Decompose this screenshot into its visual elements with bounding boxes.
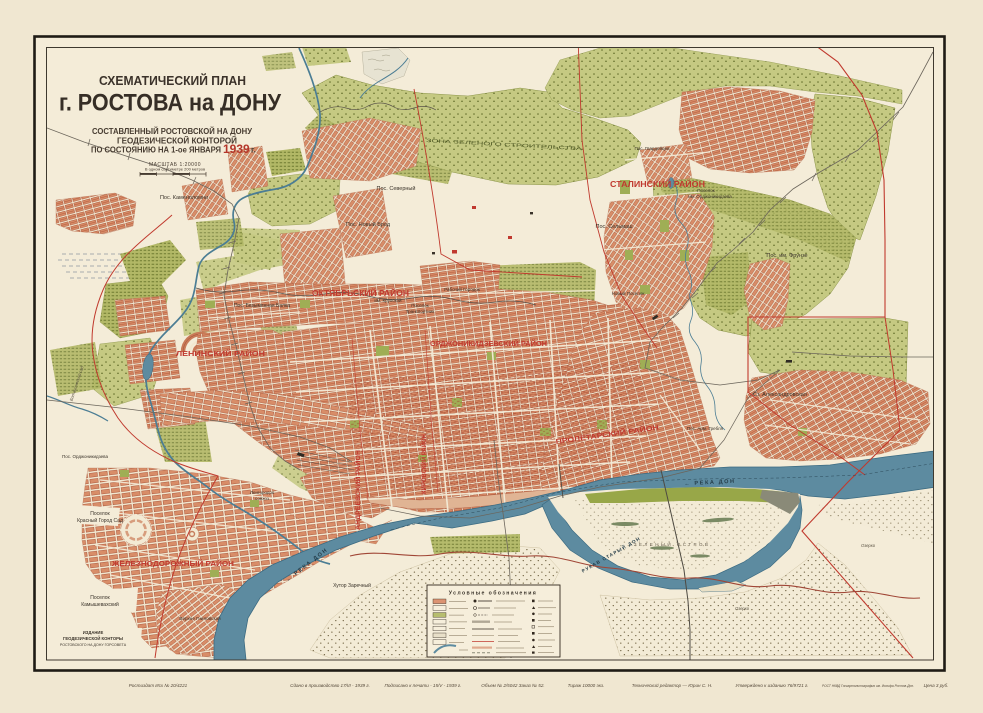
svg-text:им. Крупской: им. Крупской [374, 297, 402, 303]
svg-text:СТАЛИНСКИЙ РАЙОН: СТАЛИНСКИЙ РАЙОН [610, 178, 705, 189]
svg-text:им. Орджоникидзева: им. Орджоникидзева [688, 194, 732, 199]
svg-text:Пос. Каменоломни: Пос. Каменоломни [160, 195, 208, 201]
svg-text:Камышевахский: Камышевахский [81, 601, 119, 608]
svg-text:Пос. Безымянная Балка: Пос. Безымянная Балка [234, 303, 290, 309]
svg-text:Пос. Гвардейцев: Пос. Гвардейцев [635, 145, 671, 151]
svg-text:Условные обозначения: Условные обозначения [449, 590, 537, 597]
svg-text:1939: 1939 [223, 142, 250, 156]
svg-text:В одном сантиметре 200 метров: В одном сантиметре 200 метров [145, 167, 205, 172]
svg-text:Пос. Новый Брод: Пос. Новый Брод [346, 221, 391, 228]
svg-text:Цена 3 руб.: Цена 3 руб. [924, 683, 949, 688]
svg-text:Новый Поселок: Новый Поселок [612, 290, 645, 296]
svg-text:Верхне Гниловская: Верхне Гниловская [179, 616, 221, 621]
svg-text:ИЗДАНИЕ: ИЗДАНИЕ [83, 630, 104, 635]
svg-text:Озерко: Озерко [861, 543, 876, 548]
svg-text:ЛЕНИНСКИЙ РАЙОН: ЛЕНИНСКИЙ РАЙОН [176, 349, 265, 358]
svg-text:Пос. Арм. Гребля: Пос. Арм. Гребля [687, 426, 724, 431]
svg-text:Поселок: Поселок [90, 511, 110, 517]
svg-text:Хутор Заречный: Хутор Заречный [333, 582, 371, 589]
svg-text:РОСТ НКВД Госкартолитография и: РОСТ НКВД Госкартолитография им. Иосифа … [822, 683, 914, 688]
svg-text:ЗЕЛЕНЫЙ ОСТРОВ: ЗЕЛЕНЫЙ ОСТРОВ [634, 540, 711, 547]
svg-text:Ст. Александровская: Ст. Александровская [753, 392, 807, 398]
svg-text:Поселок: Поселок [90, 595, 110, 601]
svg-text:СХЕМАТИЧЕСКИЙ ПЛАН: СХЕМАТИЧЕСКИЙ ПЛАН [99, 73, 246, 88]
svg-text:ПО СОСТОЯНИЮ НА 1-ое ЯНВАРЯ: ПО СОСТОЯНИЮ НА 1-ое ЯНВАРЯ [91, 146, 221, 155]
svg-text:ЖЕЛЕЗНОДОРОЖНЫЙ РАЙОН: ЖЕЛЕЗНОДОРОЖНЫЙ РАЙОН [111, 559, 234, 568]
svg-text:совхоз: совхоз [255, 496, 269, 501]
svg-text:Объем № 2/5042 Заказ № 52.: Объем № 2/5042 Заказ № 52. [481, 683, 544, 688]
svg-text:Пос. Орджоникидзева: Пос. Орджоникидзева [62, 454, 108, 459]
svg-text:Сдано в производство 17/III -: Сдано в производство 17/III - 1939 г. [290, 683, 370, 688]
svg-text:Утверждено к изданию 76/9721: Утверждено к изданию 76/9721 г. [735, 683, 808, 688]
svg-text:Озерко: Озерко [735, 606, 750, 611]
svg-text:Пос. им. Фрунзе: Пос. им. Фрунзе [766, 253, 807, 259]
svg-text:ОРДЖОНИКИДЗЕВСКИЙ РАЙОН: ОРДЖОНИКИДЗЕВСКИЙ РАЙОН [430, 339, 547, 348]
svg-text:г. РОСТОВА на ДОНУ: г. РОСТОВА на ДОНУ [59, 90, 282, 117]
svg-text:ГЕОДЕЗИЧЕСКОЙ КОНТОРЫ: ГЕОДЕЗИЧЕСКОЙ КОНТОРЫ [63, 636, 123, 641]
svg-text:РОСТОВСКОГО НА ДОНУ ГОРСОВЕТА: РОСТОВСКОГО НА ДОНУ ГОРСОВЕТА [60, 643, 127, 647]
svg-text:Пос. Северный: Пос. Северный [377, 185, 416, 192]
svg-text:Транспортник: Транспортник [406, 309, 435, 314]
svg-text:Поселок: Поселок [411, 303, 429, 308]
svg-text:СОСТАВЛЕННЫЙ РОСТОВСКОЙ НА: СОСТАВЛЕННЫЙ РОСТОВСКОЙ НА ДОНУ [92, 127, 253, 136]
svg-text:Ростиздат Исх № 20/4221: Ростиздат Исх № 20/4221 [129, 683, 188, 688]
svg-text:Ленгородок: Ленгородок [250, 490, 274, 495]
svg-text:Технический редактор — Юрин С: Технический редактор — Юрин С. Н. [632, 682, 713, 688]
svg-text:г.: г. [251, 146, 256, 155]
svg-text:Рабочий Городок: Рабочий Городок [444, 286, 480, 292]
svg-text:Поселок: Поселок [697, 188, 715, 193]
svg-text:ОКТЯБРЬСКИЙ РАЙОН: ОКТЯБРЬСКИЙ РАЙОН [312, 287, 409, 298]
svg-text:Тираж 10000 экз.: Тираж 10000 экз. [568, 683, 605, 688]
svg-text:АНДРЕЕВСКИЙ РАЙОН: АНДРЕЕВСКИЙ РАЙОН [353, 450, 362, 530]
svg-text:КИРОВСКИЙ РАЙОН: КИРОВСКИЙ РАЙОН [419, 434, 428, 494]
svg-text:Красный Город Сад: Красный Город Сад [77, 517, 123, 524]
svg-text:Пос. Сельмаш: Пос. Сельмаш [596, 224, 634, 230]
svg-text:ГЕОДЕЗИЧЕСКОЙ КОНТОРОЙ: ГЕОДЕЗИЧЕСКОЙ КОНТОРОЙ [117, 137, 237, 146]
svg-text:Подписано к печати - 15/V - 1: Подписано к печати - 15/V - 1939 г. [385, 683, 462, 688]
